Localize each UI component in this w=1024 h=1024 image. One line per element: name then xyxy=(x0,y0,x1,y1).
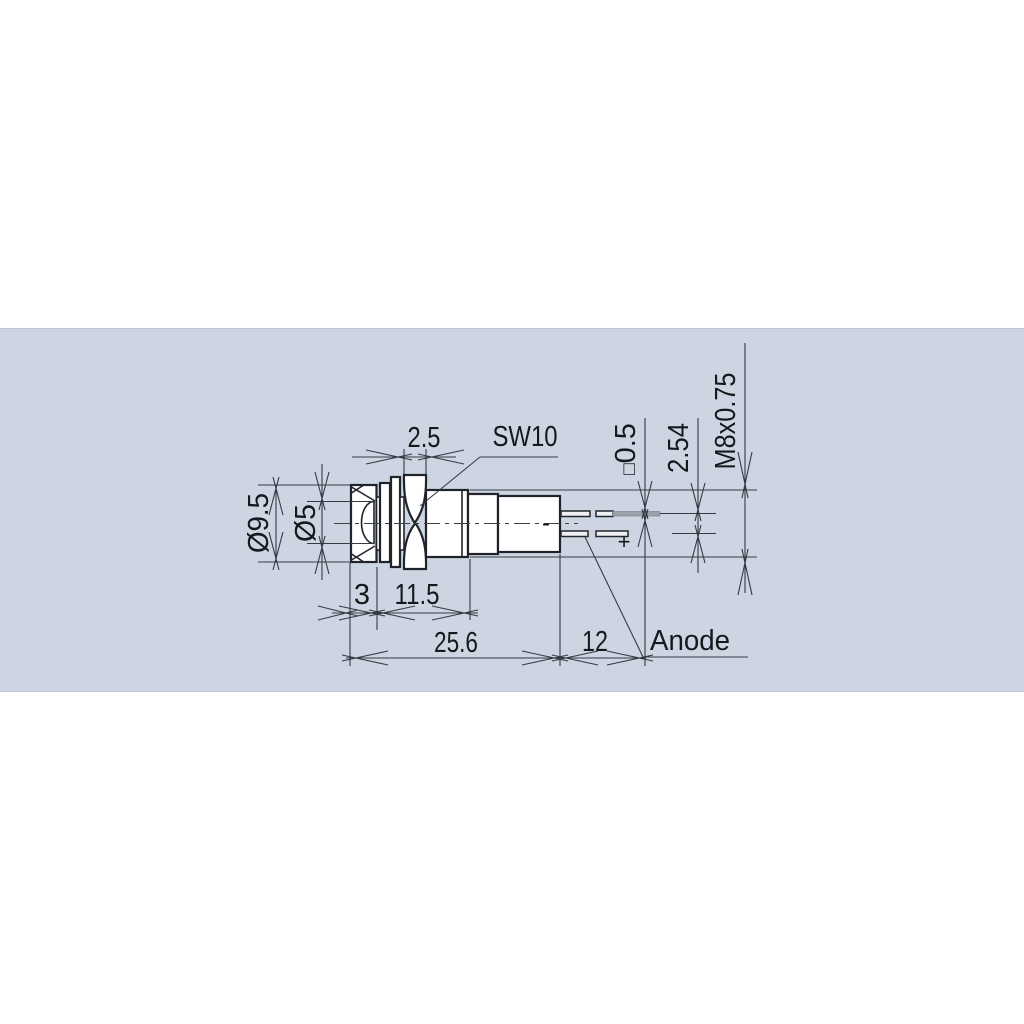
cathode-pin-segment xyxy=(596,511,613,517)
label-body-length: 25.6 xyxy=(434,627,478,659)
label-anode: Anode xyxy=(650,625,730,657)
front-plate xyxy=(380,483,390,562)
label-led-diameter: Ø5 xyxy=(290,504,322,542)
anode-polarity-sign: + xyxy=(618,529,631,554)
anode-pin-segment xyxy=(561,531,588,537)
label-thread-spec: M8x0.75 xyxy=(710,373,742,470)
label-thread-length: 11.5 xyxy=(395,579,440,611)
washer xyxy=(391,477,400,567)
cathode-pin-segment xyxy=(561,511,590,517)
cathode-polarity-sign: - xyxy=(542,510,550,537)
label-bezel-length: 3 xyxy=(354,579,370,611)
cathode-pin-break xyxy=(613,512,660,517)
label-pin-pitch: 2.54 xyxy=(663,423,695,473)
label-pin-length: 12 xyxy=(582,626,608,658)
label-nut-width: 2.5 xyxy=(408,422,441,454)
technical-drawing-canvas: Ø9.5 Ø5 2.5 SW10 □0.5 2.54 M8x0.75 3 11.… xyxy=(0,0,1024,1024)
label-wrench-size: SW10 xyxy=(493,421,558,453)
label-outer-diameter: Ø9.5 xyxy=(243,493,275,553)
